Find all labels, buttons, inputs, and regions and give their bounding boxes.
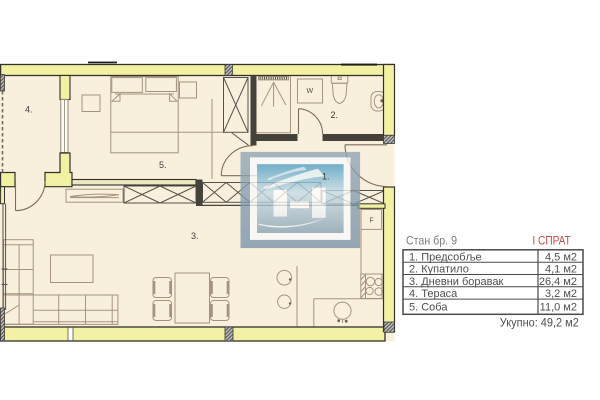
svg-text:4. Тераса: 4. Тераса (409, 288, 458, 300)
svg-text:3.: 3. (191, 231, 199, 241)
svg-text:3. Дневни боравак: 3. Дневни боравак (409, 276, 503, 288)
svg-text:4.: 4. (25, 105, 33, 115)
svg-text:2. Купатило: 2. Купатило (409, 264, 469, 276)
svg-text:11,0 м2: 11,0 м2 (540, 302, 577, 314)
svg-text:4,5 м2: 4,5 м2 (545, 251, 577, 263)
svg-text:W: W (307, 88, 314, 95)
svg-text:5.: 5. (159, 160, 167, 170)
svg-text:I СПРАТ: I СПРАТ (532, 236, 570, 248)
svg-text:5. Соба: 5. Соба (409, 302, 448, 314)
svg-text:4,1 м2: 4,1 м2 (545, 264, 577, 276)
svg-text:1.: 1. (322, 172, 330, 182)
svg-text:26,4 м2: 26,4 м2 (539, 276, 577, 288)
svg-text:2.: 2. (331, 110, 339, 120)
svg-text:Стан бр. 9: Стан бр. 9 (406, 234, 457, 248)
svg-text:1. Предсобље: 1. Предсобље (409, 251, 482, 263)
svg-text:Укупно: 49,2 м2: Укупно: 49,2 м2 (500, 316, 579, 330)
svg-text:F: F (370, 218, 374, 225)
svg-text:3,2 м2: 3,2 м2 (545, 288, 577, 300)
